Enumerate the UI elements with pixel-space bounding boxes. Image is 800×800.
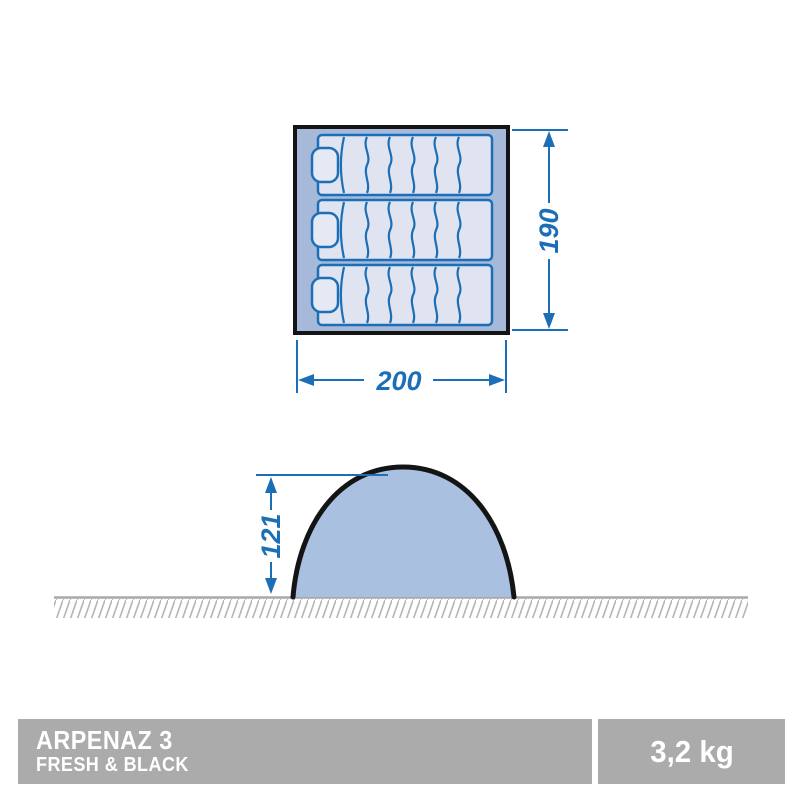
tent-floorplan bbox=[295, 127, 508, 333]
dome-fill bbox=[293, 467, 514, 597]
ground-hatch bbox=[54, 599, 748, 618]
product-subtitle: FRESH & BLACK bbox=[36, 754, 536, 776]
height-value: 121 bbox=[256, 513, 286, 558]
product-name: ARPENAZ 3 bbox=[36, 727, 536, 754]
arrow-left-icon bbox=[298, 374, 314, 386]
sleeping-mat bbox=[312, 265, 492, 325]
arrow-down-icon bbox=[543, 313, 555, 329]
weight-badge: 3,2 kg bbox=[598, 719, 785, 784]
tent-dimension-diagram: 190 200 121 bbox=[0, 0, 800, 700]
tent-side-view bbox=[54, 467, 748, 618]
arrow-up-icon bbox=[265, 477, 277, 493]
depth-value: 190 bbox=[534, 208, 564, 253]
arrow-right-icon bbox=[489, 374, 505, 386]
sleeping-mat bbox=[312, 200, 492, 260]
weight-value: 3,2 kg bbox=[650, 734, 733, 770]
arrow-up-icon bbox=[543, 131, 555, 147]
sleeping-mat bbox=[312, 135, 492, 195]
width-value: 200 bbox=[375, 366, 421, 396]
arrow-down-icon bbox=[265, 578, 277, 594]
product-name-bar: ARPENAZ 3 FRESH & BLACK bbox=[18, 719, 592, 784]
